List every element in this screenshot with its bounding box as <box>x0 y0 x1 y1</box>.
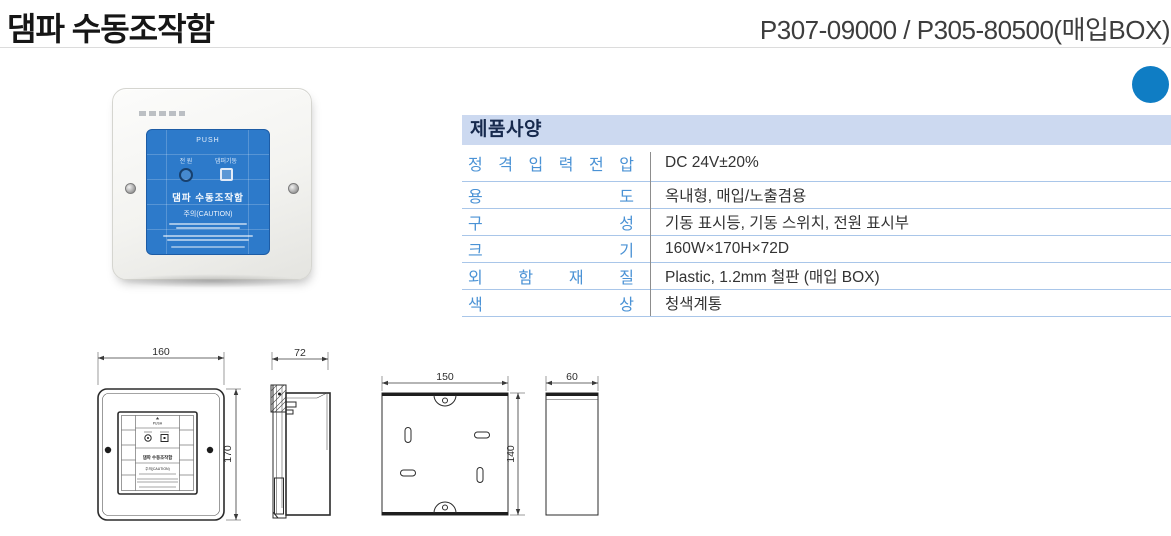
page-title: 댐파 수동조작함 <box>7 4 214 50</box>
spec-section: 제품사양 정 격 입 력 전 압 DC 24V±20% 용 도 옥내형, 매입/… <box>462 115 1171 317</box>
spec-table: 정 격 입 력 전 압 DC 24V±20% 용 도 옥내형, 매입/노출겸용 … <box>462 145 1171 317</box>
fine-print-line <box>171 246 244 248</box>
spec-label: 외 함 재 질 <box>462 264 650 288</box>
accent-dot-icon <box>1132 66 1169 103</box>
fine-print-line <box>169 223 247 225</box>
damper-switch-icon <box>220 168 233 181</box>
screw-icon <box>125 183 136 194</box>
spec-row: 정 격 입 력 전 압 DC 24V±20% <box>462 145 1171 182</box>
screw-icon <box>288 183 299 194</box>
spec-row: 색 상 청색계통 <box>462 290 1171 317</box>
push-label: PUSH <box>147 137 269 144</box>
spec-label: 크 기 <box>462 237 650 261</box>
power-indicator: 전 원 <box>179 156 193 182</box>
spec-value: DC 24V±20% <box>650 154 759 172</box>
spec-value: 기동 표시등, 기동 스위치, 전원 표시부 <box>650 211 909 233</box>
spec-value: 옥내형, 매입/노출겸용 <box>650 184 806 206</box>
dim-height-140: 140 <box>505 445 517 463</box>
spec-label: 색 상 <box>462 291 650 315</box>
dim-width-160: 160 <box>152 348 170 358</box>
dim-width-150: 150 <box>436 371 454 383</box>
damper-label: 댐퍼기동 <box>215 156 237 165</box>
catalog-page: 댐파 수동조작함 P307-09000 / P305-80500(매입BOX) … <box>0 0 1171 536</box>
spec-row: 용 도 옥내형, 매입/노출겸용 <box>462 182 1171 209</box>
header-divider <box>0 47 1171 48</box>
power-label: 전 원 <box>180 156 193 165</box>
spec-row: 외 함 재 질 Plastic, 1.2mm 철판 (매입 BOX) <box>462 263 1171 290</box>
product-photo: PUSH 전 원 댐퍼기동 댐파 수동조작함 주의(CAUTION) <box>112 88 312 280</box>
enclosure-body: PUSH 전 원 댐퍼기동 댐파 수동조작함 주의(CAUTION) <box>112 88 312 280</box>
spec-value: 160W×170H×72D <box>650 240 789 258</box>
spec-row: 구 성 기동 표시등, 기동 스위치, 전원 표시부 <box>462 209 1171 236</box>
drawing-box-front-view: 150 140 <box>375 368 530 528</box>
spec-value: 청색계통 <box>650 292 722 314</box>
fine-print-line <box>163 235 253 237</box>
indicator-row: 전 원 댐퍼기동 <box>147 156 269 182</box>
panel-caution-label: 주의(CAUTION) <box>147 209 269 219</box>
dim-depth-72: 72 <box>294 348 306 359</box>
spec-section-header: 제품사양 <box>462 115 1171 145</box>
drawing-panel-caution: 주의(CAUTION) <box>145 466 170 471</box>
photo-shadow <box>119 274 305 288</box>
fine-print-line <box>167 239 250 241</box>
damper-start-indicator: 댐퍼기동 <box>215 156 237 182</box>
drawing-panel-name: 댐파 수동조작함 <box>143 454 173 461</box>
spec-section-title: 제품사양 <box>462 115 1171 145</box>
dim-depth-60: 60 <box>566 371 578 383</box>
spec-row: 크 기 160W×170H×72D <box>462 236 1171 263</box>
spec-label: 구 성 <box>462 210 650 234</box>
control-panel: PUSH 전 원 댐퍼기동 댐파 수동조작함 주의(CAUTION) <box>146 129 270 255</box>
spec-value: Plastic, 1.2mm 철판 (매입 BOX) <box>650 265 880 287</box>
drawing-box-side-view: 60 <box>528 368 613 528</box>
drawing-front-view: 160 170 PUSH 댐파 수동 <box>75 348 250 530</box>
spec-column-divider <box>650 152 651 316</box>
fine-print-line <box>176 227 239 229</box>
drawing-side-view: 72 <box>262 348 342 530</box>
model-code: P307-09000 / P305-80500(매입BOX) <box>760 10 1170 47</box>
panel-name-label: 댐파 수동조작함 <box>147 190 269 204</box>
brand-logo <box>139 111 185 116</box>
spec-label: 용 도 <box>462 183 650 207</box>
drawing-push-label: PUSH <box>153 422 163 426</box>
power-lamp-icon <box>179 168 193 182</box>
spec-label: 정 격 입 력 전 압 <box>462 151 650 175</box>
